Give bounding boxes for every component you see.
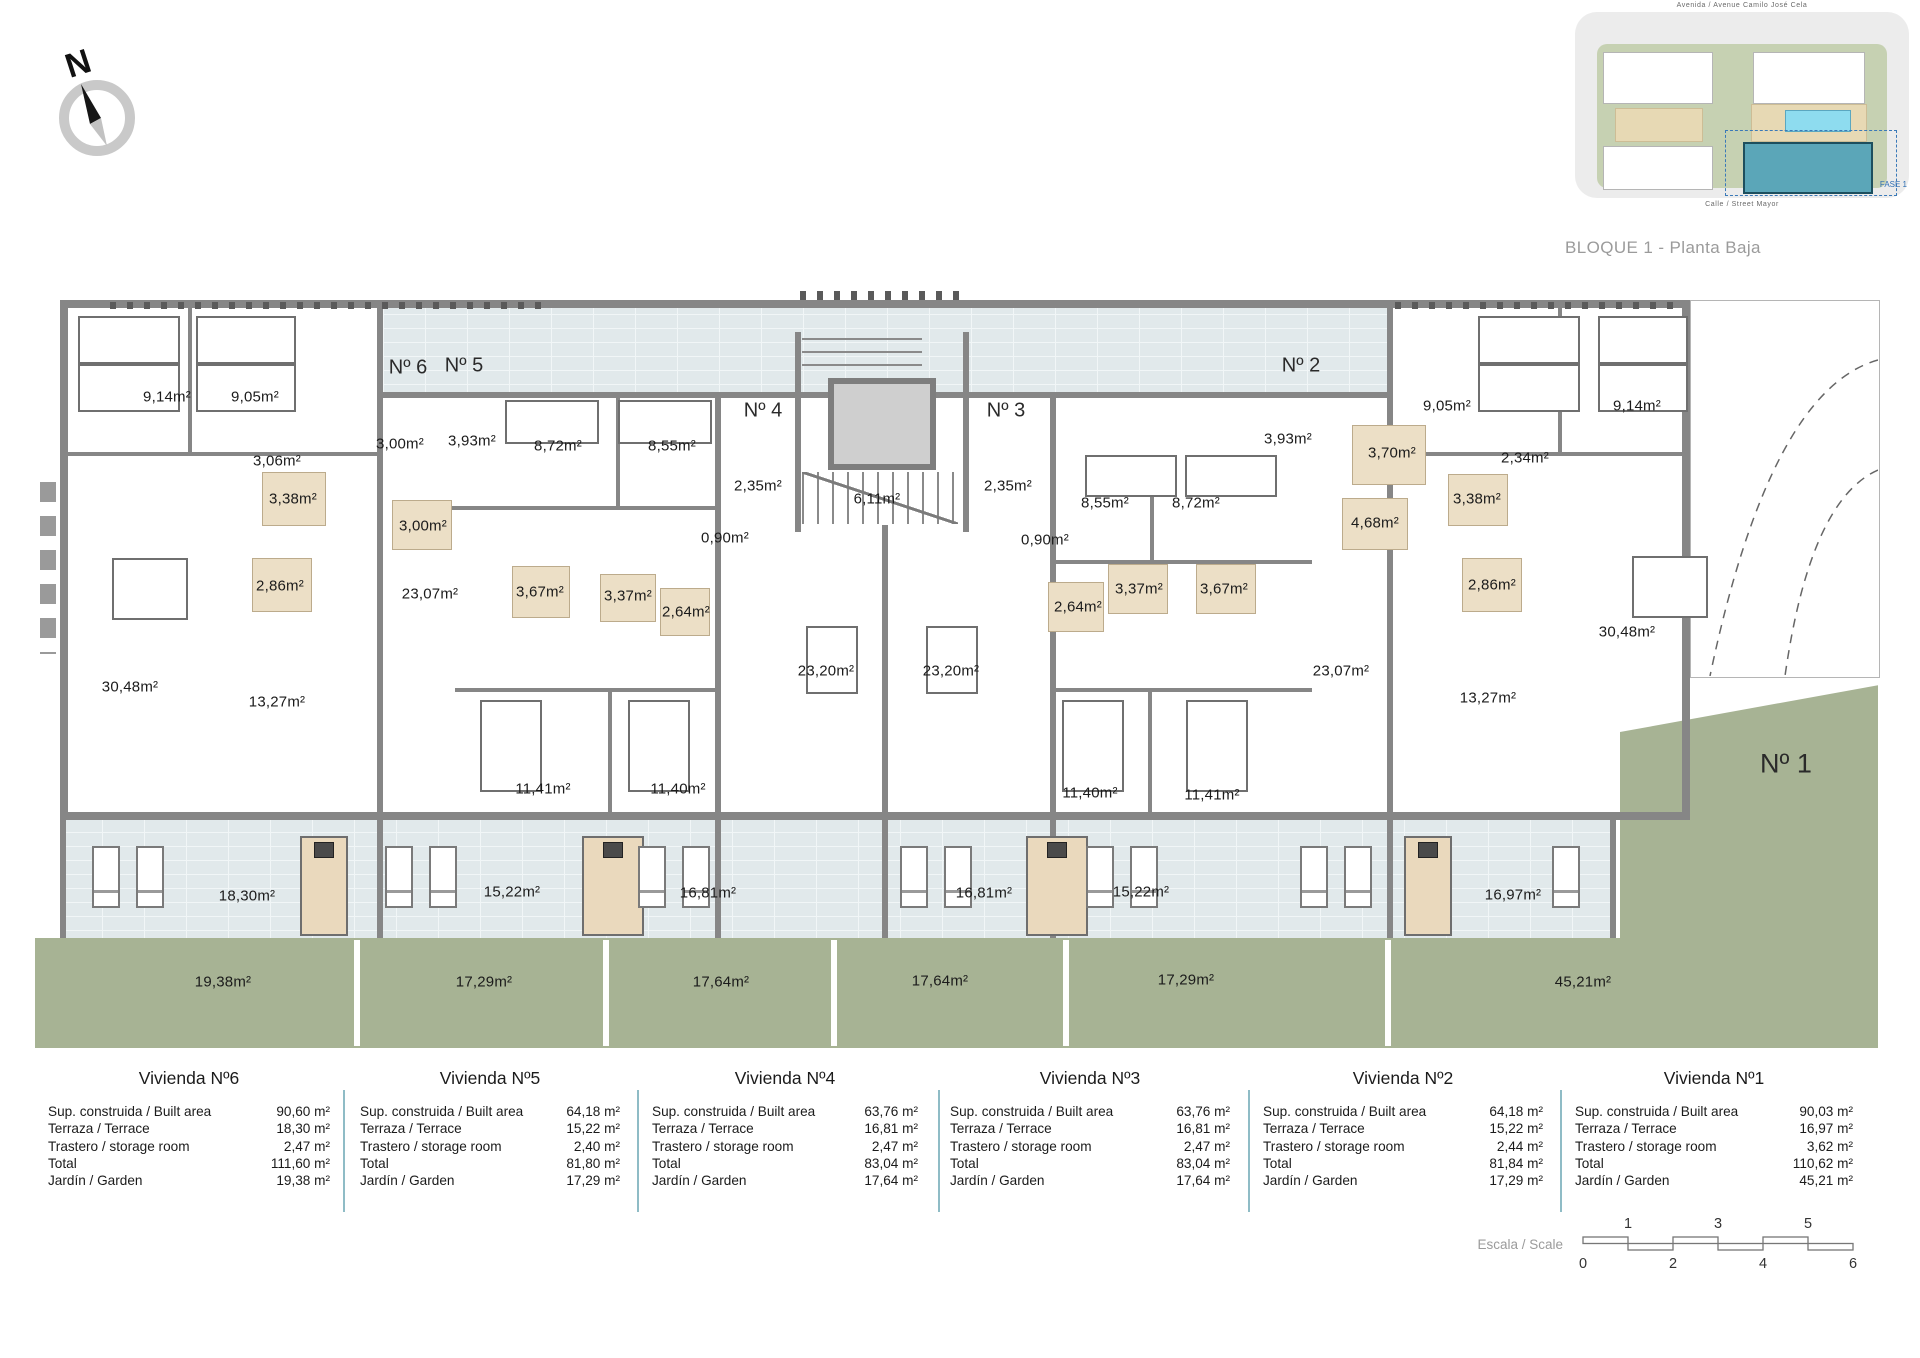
row-label: Sup. construida / Built area [652, 1103, 815, 1120]
room-area-label: 9,05m² [1423, 398, 1471, 415]
room-area-label: 23,20m² [923, 663, 979, 680]
wall [1148, 688, 1152, 814]
row-value: 83,04 m² [1176, 1155, 1230, 1172]
parapet-dashes [110, 302, 550, 309]
sun-lounger [1300, 846, 1328, 908]
room-area-label: 11,41m² [1184, 787, 1239, 804]
wall [963, 332, 969, 532]
table-row: Jardín / Garden17,29 m² [360, 1172, 620, 1189]
room-area-label: 3,06m² [253, 453, 301, 470]
room-area-label: 8,55m² [648, 438, 696, 455]
row-label: Jardín / Garden [360, 1172, 454, 1189]
row-value: 2,47 m² [284, 1138, 330, 1155]
row-label: Jardín / Garden [1575, 1172, 1669, 1189]
unit-area-table: Vivienda Nº3Sup. construida / Built area… [950, 1068, 1230, 1189]
scale-label: Escala / Scale [1415, 1237, 1563, 1252]
room-area-label: 8,55m² [1081, 495, 1129, 512]
table-row: Sup. construida / Built area64,18 m² [360, 1103, 620, 1120]
room-area-label: 9,05m² [231, 389, 279, 406]
room-area-label: 18,30m² [219, 888, 275, 905]
row-value: 2,44 m² [1497, 1138, 1543, 1155]
table-row: Total83,04 m² [652, 1155, 918, 1172]
sun-lounger [385, 846, 413, 908]
stair-treads-upper [802, 338, 922, 376]
room-area-label: 13,27m² [249, 694, 305, 711]
row-label: Total [950, 1155, 979, 1172]
row-label: Total [48, 1155, 77, 1172]
scale-tick: 2 [1669, 1256, 1677, 1272]
table-row: Total110,62 m² [1575, 1155, 1853, 1172]
row-value: 90,03 m² [1799, 1103, 1853, 1120]
row-label: Trastero / storage room [360, 1138, 502, 1155]
garden-divider [1385, 940, 1391, 1046]
wall [60, 818, 66, 938]
furniture [1186, 700, 1248, 792]
table-row: Total111,60 m² [48, 1155, 330, 1172]
wall [188, 300, 192, 456]
table-row: Jardín / Garden19,38 m² [48, 1172, 330, 1189]
sun-lounger [1086, 846, 1114, 908]
row-value: 16,81 m² [864, 1120, 918, 1137]
room-area-label: 17,29m² [1158, 972, 1214, 989]
unit-area-table: Vivienda Nº1Sup. construida / Built area… [1575, 1068, 1853, 1189]
furniture [1632, 556, 1708, 618]
sun-lounger [638, 846, 666, 908]
row-label: Sup. construida / Built area [360, 1103, 523, 1120]
room-area-label: 3,93m² [448, 433, 496, 450]
unit-area-table: Vivienda Nº4Sup. construida / Built area… [652, 1068, 918, 1189]
room-area-label: 3,00m² [399, 518, 447, 535]
furniture [1478, 364, 1580, 412]
furniture [1478, 316, 1580, 364]
parapet-dashes [800, 291, 968, 300]
room-area-label: 16,81m² [680, 885, 736, 902]
wall [608, 688, 612, 814]
scale-tick: 1 [1624, 1216, 1632, 1232]
row-value: 17,29 m² [566, 1172, 620, 1189]
row-label: Sup. construida / Built area [1263, 1103, 1426, 1120]
table-divider [1560, 1090, 1562, 1212]
table-divider [938, 1090, 940, 1212]
row-label: Total [1263, 1155, 1292, 1172]
table-row: Terraza / Terrace15,22 m² [360, 1120, 620, 1137]
wall [377, 300, 383, 820]
driveway-dashed-arcs [1690, 300, 1878, 676]
garden-divider [603, 940, 609, 1046]
storage-room [1026, 836, 1088, 936]
room-area-label: 2,35m² [984, 478, 1032, 495]
elevator-shaft [828, 378, 936, 470]
table-row: Trastero / storage room2,47 m² [950, 1138, 1230, 1155]
room-area-label: 16,81m² [956, 885, 1012, 902]
row-value: 2,40 m² [574, 1138, 620, 1155]
furniture [112, 558, 188, 620]
storage-room [1404, 836, 1452, 936]
row-value: 81,80 m² [566, 1155, 620, 1172]
furniture [806, 626, 858, 694]
row-label: Jardín / Garden [48, 1172, 142, 1189]
room-area-label: 23,20m² [798, 663, 854, 680]
row-value: 2,47 m² [872, 1138, 918, 1155]
room-area-label: 11,40m² [650, 781, 705, 798]
unit-table-title: Vivienda Nº5 [360, 1068, 620, 1089]
unit-table-title: Vivienda Nº1 [1575, 1068, 1853, 1089]
room-area-label: 4,68m² [1351, 515, 1399, 532]
row-value: 64,18 m² [1489, 1103, 1543, 1120]
table-row: Sup. construida / Built area63,76 m² [652, 1103, 918, 1120]
table-row: Terraza / Terrace18,30 m² [48, 1120, 330, 1137]
unit-table-title: Vivienda Nº4 [652, 1068, 918, 1089]
room-area-label: 2,86m² [256, 578, 304, 595]
wall [1387, 818, 1393, 938]
row-label: Total [360, 1155, 389, 1172]
row-value: 15,22 m² [566, 1120, 620, 1137]
room-area-label: 2,35m² [734, 478, 782, 495]
sun-lounger [1344, 846, 1372, 908]
row-value: 81,84 m² [1489, 1155, 1543, 1172]
room-area-label: 19,38m² [195, 974, 251, 991]
garden-divider [1063, 940, 1069, 1046]
room-area-label: 3,37m² [604, 588, 652, 605]
sun-lounger [1552, 846, 1580, 908]
row-value: 17,64 m² [864, 1172, 918, 1189]
room-area-label: 30,48m² [1599, 624, 1655, 641]
scale-tick: 0 [1579, 1256, 1587, 1272]
row-value: 64,18 m² [566, 1103, 620, 1120]
room-area-label: 3,67m² [1200, 581, 1248, 598]
unit-number-marker: Nº 1 [1760, 749, 1812, 780]
row-label: Terraza / Terrace [48, 1120, 150, 1137]
row-label: Jardín / Garden [652, 1172, 746, 1189]
row-value: 90,60 m² [276, 1103, 330, 1120]
row-label: Trastero / storage room [1575, 1138, 1717, 1155]
room-area-label: 3,70m² [1368, 445, 1416, 462]
room-area-label: 0,90m² [701, 530, 749, 547]
table-row: Total81,84 m² [1263, 1155, 1543, 1172]
room-area-label: 9,14m² [143, 389, 191, 406]
row-value: 19,38 m² [276, 1172, 330, 1189]
wall [715, 818, 721, 938]
room-area-label: 2,64m² [662, 604, 710, 621]
table-row: Trastero / storage room3,62 m² [1575, 1138, 1853, 1155]
furniture [480, 700, 542, 792]
sun-lounger [900, 846, 928, 908]
private-terrace-band [60, 818, 1616, 938]
room-area-label: 17,64m² [693, 974, 749, 991]
row-value: 16,81 m² [1176, 1120, 1230, 1137]
furniture [926, 626, 978, 694]
room-area-label: 15,22m² [484, 884, 540, 901]
unit-number-marker: Nº 6 [389, 357, 427, 380]
wall [1387, 300, 1393, 820]
table-row: Terraza / Terrace16,97 m² [1575, 1120, 1853, 1137]
furniture [1185, 455, 1277, 497]
room-area-label: 3,00m² [376, 436, 424, 453]
table-divider [1248, 1090, 1250, 1212]
furniture [1598, 316, 1688, 364]
table-divider [637, 1090, 639, 1212]
row-value: 83,04 m² [864, 1155, 918, 1172]
room-area-label: 16,97m² [1485, 887, 1541, 904]
scale-tick: 5 [1804, 1216, 1812, 1232]
room-area-label: 23,07m² [1313, 663, 1369, 680]
sun-lounger [136, 846, 164, 908]
scale-tick: 4 [1759, 1256, 1767, 1272]
floor-plan: 9,14m²9,05m²3,06m²3,00m²3,38m²3,00m²2,86… [0, 0, 1920, 1060]
room-area-label: 2,64m² [1054, 599, 1102, 616]
row-value: 17,64 m² [1176, 1172, 1230, 1189]
room-area-label: 2,86m² [1468, 577, 1516, 594]
table-row: Sup. construida / Built area64,18 m² [1263, 1103, 1543, 1120]
table-row: Trastero / storage room2,44 m² [1263, 1138, 1543, 1155]
sun-lounger [429, 846, 457, 908]
unit-area-table: Vivienda Nº2Sup. construida / Built area… [1263, 1068, 1543, 1189]
room-area-label: 11,40m² [1062, 785, 1117, 802]
row-label: Sup. construida / Built area [48, 1103, 211, 1120]
room-area-label: 17,64m² [912, 973, 968, 990]
row-value: 63,76 m² [864, 1103, 918, 1120]
unit-number-marker: Nº 5 [445, 355, 483, 378]
storage-room [582, 836, 644, 936]
table-row: Trastero / storage room2,47 m² [652, 1138, 918, 1155]
row-value: 18,30 m² [276, 1120, 330, 1137]
table-row: Jardín / Garden17,64 m² [652, 1172, 918, 1189]
table-row: Jardín / Garden45,21 m² [1575, 1172, 1853, 1189]
table-row: Jardín / Garden17,29 m² [1263, 1172, 1543, 1189]
row-label: Trastero / storage room [950, 1138, 1092, 1155]
row-value: 16,97 m² [1799, 1120, 1853, 1137]
unit-number-marker: Nº 2 [1282, 355, 1320, 378]
table-row: Terraza / Terrace15,22 m² [1263, 1120, 1543, 1137]
row-label: Terraza / Terrace [1263, 1120, 1365, 1137]
row-value: 15,22 m² [1489, 1120, 1543, 1137]
room-area-label: 13,27m² [1460, 690, 1516, 707]
row-label: Terraza / Terrace [652, 1120, 754, 1137]
unit-table-title: Vivienda Nº3 [950, 1068, 1230, 1089]
table-row: Total83,04 m² [950, 1155, 1230, 1172]
row-label: Trastero / storage room [652, 1138, 794, 1155]
row-label: Total [652, 1155, 681, 1172]
row-label: Jardín / Garden [950, 1172, 1044, 1189]
side-balcony [36, 468, 60, 658]
table-row: Sup. construida / Built area90,03 m² [1575, 1103, 1853, 1120]
room-area-label: 6,11m² [854, 491, 901, 508]
row-label: Terraza / Terrace [360, 1120, 462, 1137]
wall [60, 300, 68, 820]
row-value: 3,62 m² [1807, 1138, 1853, 1155]
furniture [628, 700, 690, 792]
room-area-label: 17,29m² [456, 974, 512, 991]
unit-number-marker: Nº 4 [744, 400, 782, 423]
table-row: Trastero / storage room2,40 m² [360, 1138, 620, 1155]
room-area-label: 2,34m² [1501, 450, 1549, 467]
garden-band [35, 938, 1878, 1048]
row-value: 63,76 m² [1176, 1103, 1230, 1120]
room-area-label: 15,22m² [1113, 884, 1169, 901]
room-area-label: 9,14m² [1613, 398, 1661, 415]
wall [795, 332, 801, 532]
table-divider [343, 1090, 345, 1212]
table-row: Trastero / storage room2,47 m² [48, 1138, 330, 1155]
row-label: Jardín / Garden [1263, 1172, 1357, 1189]
wall [60, 452, 382, 456]
unit-number-marker: Nº 3 [987, 400, 1025, 423]
table-row: Sup. construida / Built area90,60 m² [48, 1103, 330, 1120]
row-label: Sup. construida / Built area [1575, 1103, 1738, 1120]
sun-lounger [92, 846, 120, 908]
row-label: Sup. construida / Built area [950, 1103, 1113, 1120]
wall [882, 818, 888, 938]
floorplan-sheet: N Avenida / Avenue Camilo José Cela FASE… [0, 0, 1920, 1358]
room-area-label: 0,90m² [1021, 532, 1069, 549]
row-value: 111,60 m² [271, 1155, 330, 1172]
row-label: Total [1575, 1155, 1604, 1172]
table-row: Sup. construida / Built area63,76 m² [950, 1103, 1230, 1120]
furniture [1062, 700, 1124, 792]
wall [442, 506, 716, 510]
wall [455, 688, 717, 692]
row-value: 2,47 m² [1184, 1138, 1230, 1155]
room-area-label: 30,48m² [102, 679, 158, 696]
wall [715, 392, 721, 820]
garden-divider [831, 940, 837, 1046]
furniture [1085, 455, 1177, 497]
row-value: 17,29 m² [1489, 1172, 1543, 1189]
unit-table-title: Vivienda Nº2 [1263, 1068, 1543, 1089]
room-area-label: 45,21m² [1555, 974, 1611, 991]
wall [377, 818, 383, 938]
room-area-label: 3,93m² [1264, 431, 1312, 448]
table-row: Terraza / Terrace16,81 m² [652, 1120, 918, 1137]
furniture [78, 316, 180, 364]
wall [1052, 688, 1312, 692]
room-area-label: 3,67m² [516, 584, 564, 601]
scale-tick: 3 [1714, 1216, 1722, 1232]
wall [60, 812, 1690, 820]
unit-area-table: Vivienda Nº6Sup. construida / Built area… [48, 1068, 330, 1189]
room-area-label: 3,38m² [269, 491, 317, 508]
table-row: Total81,80 m² [360, 1155, 620, 1172]
unit-area-table: Vivienda Nº5Sup. construida / Built area… [360, 1068, 620, 1189]
row-value: 45,21 m² [1799, 1172, 1853, 1189]
room-area-label: 8,72m² [534, 438, 582, 455]
scale-tick: 6 [1849, 1256, 1857, 1272]
garden-divider [354, 940, 360, 1046]
row-label: Trastero / storage room [1263, 1138, 1405, 1155]
room-area-label: 8,72m² [1172, 495, 1220, 512]
room-area-label: 3,37m² [1115, 581, 1163, 598]
row-label: Terraza / Terrace [1575, 1120, 1677, 1137]
row-label: Terraza / Terrace [950, 1120, 1052, 1137]
row-label: Trastero / storage room [48, 1138, 190, 1155]
furniture [196, 316, 296, 364]
unit-table-title: Vivienda Nº6 [48, 1068, 330, 1089]
wall [882, 525, 888, 820]
table-row: Jardín / Garden17,64 m² [950, 1172, 1230, 1189]
room-area-label: 3,38m² [1453, 491, 1501, 508]
table-row: Terraza / Terrace16,81 m² [950, 1120, 1230, 1137]
room-area-label: 23,07m² [402, 586, 458, 603]
wall [1610, 818, 1616, 938]
parapet-dashes [1395, 302, 1675, 309]
wall [1054, 560, 1312, 564]
scale-bar [1582, 1236, 1854, 1252]
row-value: 110,62 m² [1793, 1155, 1853, 1172]
storage-room [300, 836, 348, 936]
room-area-label: 11,41m² [515, 781, 570, 798]
